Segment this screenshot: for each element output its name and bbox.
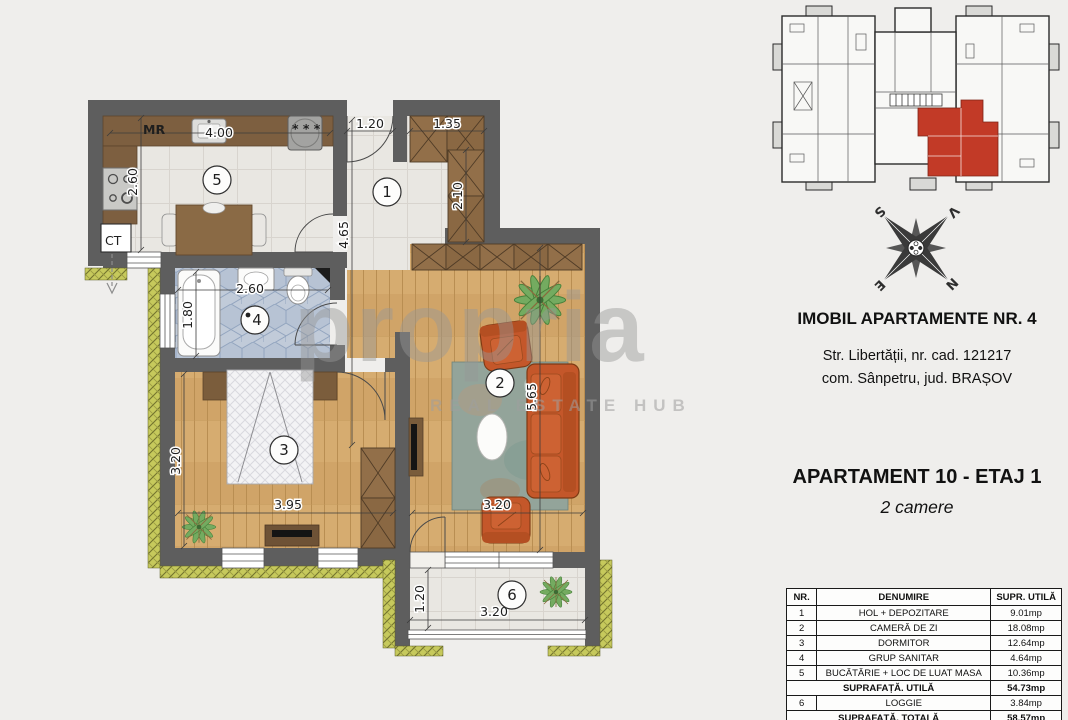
room-circle-4: 4 bbox=[241, 306, 269, 334]
dim-wardrobe2: 2.10 bbox=[450, 182, 465, 210]
coffee-table bbox=[477, 414, 507, 460]
apartment-title: APARTAMENT 10 - ETAJ 1 bbox=[772, 466, 1062, 489]
table-row: 2 CAMERĂ DE ZI 18.08mp bbox=[787, 621, 1062, 636]
apartment-subtitle: 2 camere bbox=[772, 497, 1062, 518]
room-circle-3: 3 bbox=[270, 436, 298, 464]
building-title: IMOBIL APARTAMENTE NR. 4 bbox=[772, 309, 1062, 329]
table-row: 1 HOL + DEPOZITARE 9.01mp bbox=[787, 606, 1062, 621]
bath-window bbox=[160, 294, 175, 348]
living-top-wardrobe bbox=[412, 244, 582, 270]
building-overview bbox=[770, 4, 1062, 192]
svg-text:5: 5 bbox=[212, 171, 222, 189]
table-row: 3 DORMITOR 12.64mp bbox=[787, 636, 1062, 651]
table-row: 4 GRUP SANITAR 4.64mp bbox=[787, 651, 1062, 666]
dim-bedroom-height: 3.20 bbox=[168, 447, 183, 475]
areas-table: NR. DENUMIRE SUPR. UTILĂ 1 HOL + DEPOZIT… bbox=[786, 588, 1062, 720]
bedroom-wardrobe bbox=[361, 448, 395, 548]
label-ct: CT bbox=[105, 233, 122, 248]
living-tv-panel bbox=[409, 418, 423, 476]
header-denumire: DENUMIRE bbox=[817, 589, 991, 606]
areas-table-header: NR. DENUMIRE SUPR. UTILĂ bbox=[787, 589, 1062, 606]
dim-loggia-height: 1.20 bbox=[412, 585, 427, 613]
bedroom-window-1 bbox=[222, 548, 264, 568]
table-row-loggia: 6 LOGGIE 3.84mp bbox=[787, 696, 1062, 711]
address-line-2: com. Sânpetru, jud. BRAȘOV bbox=[772, 371, 1062, 387]
loggia-plant bbox=[540, 576, 572, 608]
floor-plan: 4.00 2.60 1.20 1.35 2.10 4.65 2.60 1.80 … bbox=[0, 0, 720, 720]
bedroom-plant bbox=[182, 510, 216, 544]
header-supr: SUPR. UTILĂ bbox=[991, 589, 1062, 606]
page: 4.00 2.60 1.20 1.35 2.10 4.65 2.60 1.80 … bbox=[0, 0, 1068, 720]
living-window bbox=[445, 552, 553, 568]
loggia-railing bbox=[408, 630, 586, 639]
dim-living-height: 5.65 bbox=[524, 383, 539, 411]
room-circle-5: 5 bbox=[203, 166, 231, 194]
bedroom-window-2 bbox=[318, 548, 358, 568]
svg-text:3: 3 bbox=[279, 441, 289, 459]
svg-text:4: 4 bbox=[252, 311, 262, 329]
svg-text:6: 6 bbox=[507, 586, 517, 604]
table-row: 5 BUCĂTĂRIE + LOC DE LUAT MASA 10.36mp bbox=[787, 666, 1062, 681]
room-circle-6: 6 bbox=[498, 581, 526, 609]
dim-bedroom-width: 3.95 bbox=[274, 497, 302, 512]
armchair-1 bbox=[479, 320, 533, 372]
svg-text:2: 2 bbox=[495, 374, 505, 392]
bedroom-tv-stand bbox=[265, 525, 319, 546]
dim-kitchen-width: 4.00 bbox=[205, 125, 233, 140]
address-line-1: Str. Libertății, nr. cad. 121217 bbox=[772, 348, 1062, 364]
dim-living-width: 3.20 bbox=[483, 497, 511, 512]
loggia-door-gap bbox=[410, 552, 445, 568]
compass-rose: N S E V bbox=[858, 190, 974, 306]
room-circle-1: 1 bbox=[373, 178, 401, 206]
label-stars: * * * bbox=[292, 121, 321, 136]
room-circle-2: 2 bbox=[486, 369, 514, 397]
kitchen-window bbox=[127, 252, 161, 268]
dim-wardrobe1: 1.35 bbox=[433, 116, 461, 131]
dim-kitchen-height: 2.60 bbox=[125, 168, 140, 196]
header-nr: NR. bbox=[787, 589, 817, 606]
dim-bath-height: 1.80 bbox=[180, 301, 195, 329]
subtotal-row: SUPRAFAȚĂ. UTILĂ 54.73mp bbox=[787, 681, 1062, 696]
svg-text:1: 1 bbox=[382, 183, 392, 201]
dim-entry: 1.20 bbox=[356, 116, 384, 131]
total-row: SUPRAFAȚĂ. TOTALĂ 58.57mp bbox=[787, 711, 1062, 720]
label-mr: MR bbox=[143, 122, 165, 137]
kitchen-table bbox=[162, 203, 266, 256]
dim-hall: 4.65 bbox=[336, 221, 351, 249]
dim-bath-width: 2.60 bbox=[236, 281, 264, 296]
